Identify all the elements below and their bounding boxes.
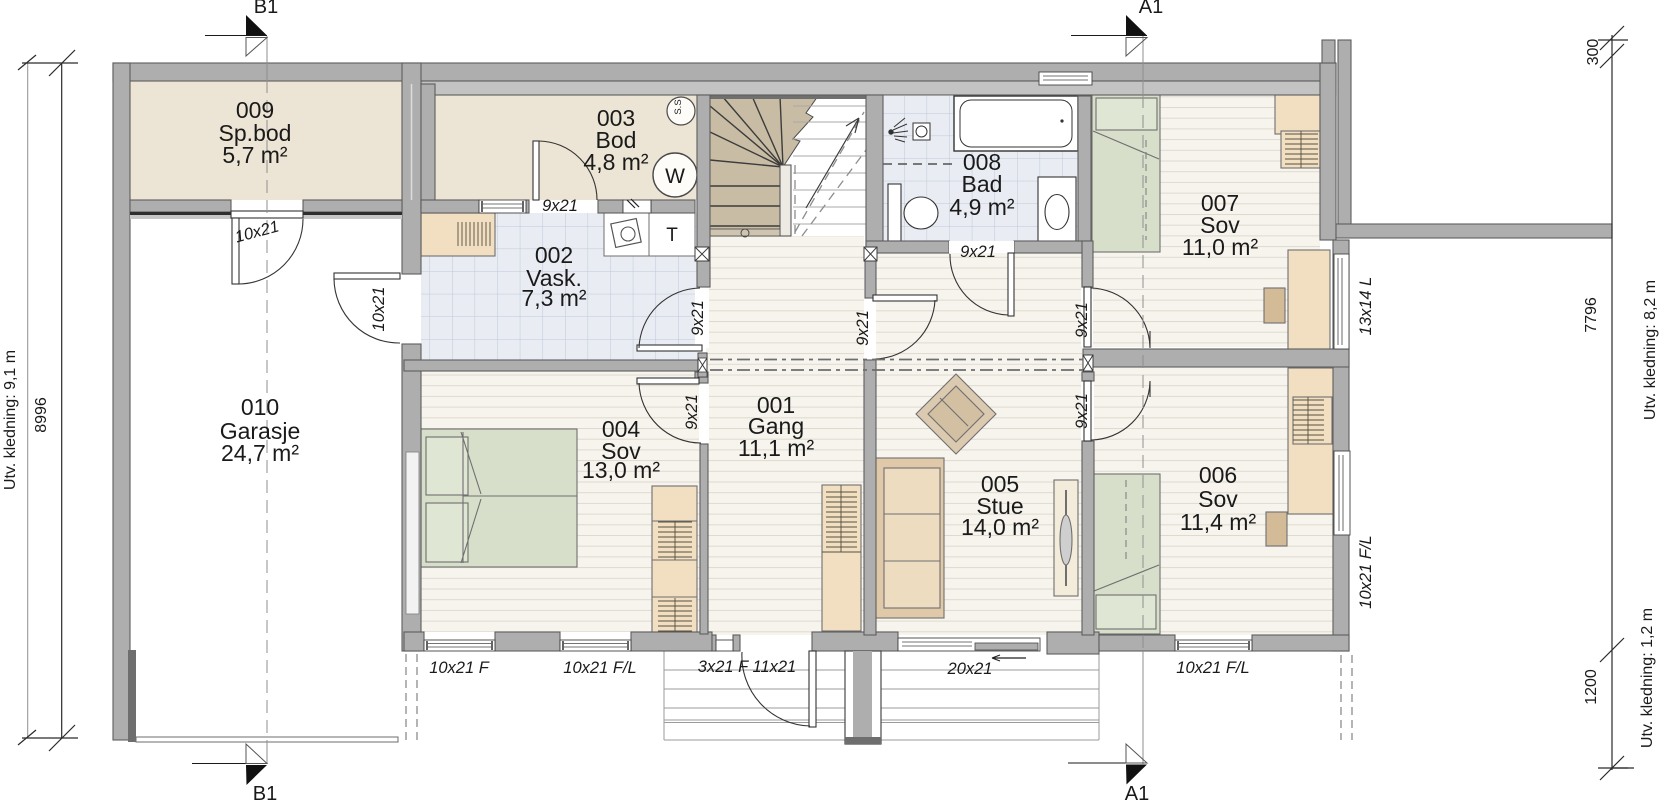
svg-text:010: 010 [241,394,279,420]
svg-text:9x21: 9x21 [1073,393,1091,429]
svg-text:A1: A1 [1125,783,1149,800]
svg-text:A1: A1 [1139,0,1163,18]
svg-text:10x21 F/L: 10x21 F/L [563,659,636,677]
svg-text:1200: 1200 [1583,669,1600,705]
svg-text:13x14 L: 13x14 L [1357,277,1375,336]
svg-text:W: W [665,165,685,188]
svg-text:20x21: 20x21 [947,660,993,678]
svg-text:T: T [666,225,678,246]
svg-text:10x21 F/L: 10x21 F/L [1357,535,1375,608]
svg-text:300: 300 [1585,39,1602,66]
svg-text:Utv. kledning: 1,2 m: Utv. kledning: 1,2 m [1639,608,1656,748]
svg-text:9x21: 9x21 [689,300,707,336]
svg-text:Utv. kledning: 9,1 m: Utv. kledning: 9,1 m [2,350,19,490]
svg-text:10x21 F: 10x21 F [429,659,490,677]
svg-text:3x21 F 11x21: 3x21 F 11x21 [698,658,796,676]
svg-text:B1: B1 [253,783,277,800]
svg-text:Utv. kledning: 8,2 m: Utv. kledning: 8,2 m [1642,280,1659,420]
svg-text:11,1 m²: 11,1 m² [738,435,815,461]
svg-text:9x21: 9x21 [854,310,872,346]
svg-text:S.S: S.S [673,99,684,114]
svg-text:14,0 m²: 14,0 m² [961,514,1039,540]
svg-text:11,0 m²: 11,0 m² [1182,234,1259,260]
svg-text:10x21 F/L: 10x21 F/L [1176,659,1249,677]
svg-text:B1: B1 [254,0,278,18]
svg-text:7,3 m²: 7,3 m² [521,285,587,311]
svg-text:4,8 m²: 4,8 m² [583,149,649,175]
svg-text:9x21: 9x21 [960,243,996,261]
svg-text:4,9 m²: 4,9 m² [949,194,1015,220]
svg-text:11,4 m²: 11,4 m² [1180,509,1257,535]
svg-text:8996: 8996 [33,397,50,433]
svg-text:006: 006 [1199,462,1237,488]
svg-text:5,7 m²: 5,7 m² [222,142,288,168]
svg-text:9x21: 9x21 [542,197,578,215]
svg-text:24,7 m²: 24,7 m² [221,440,299,466]
svg-text:13,0 m²: 13,0 m² [582,457,660,483]
svg-text:7796: 7796 [1583,297,1600,333]
svg-text:9x21: 9x21 [683,394,701,430]
svg-text:10x21: 10x21 [370,287,388,332]
svg-text:9x21: 9x21 [1073,302,1091,338]
